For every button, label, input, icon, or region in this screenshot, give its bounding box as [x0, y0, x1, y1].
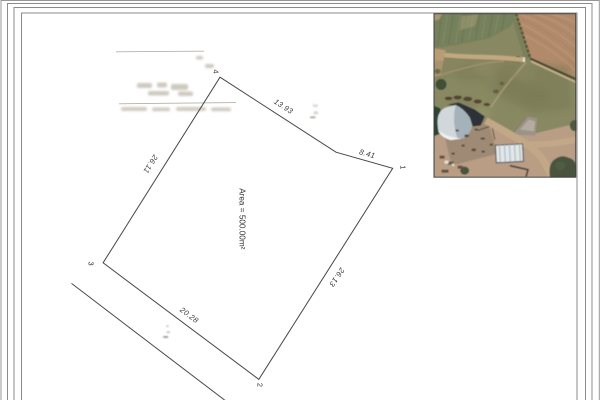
svg-text:3: 3: [87, 262, 96, 266]
svg-text:2: 2: [255, 383, 264, 387]
svg-text:1: 1: [399, 165, 408, 169]
svg-text:4: 4: [212, 69, 221, 73]
svg-text:Area = 500.00m²: Area = 500.00m²: [238, 188, 247, 249]
